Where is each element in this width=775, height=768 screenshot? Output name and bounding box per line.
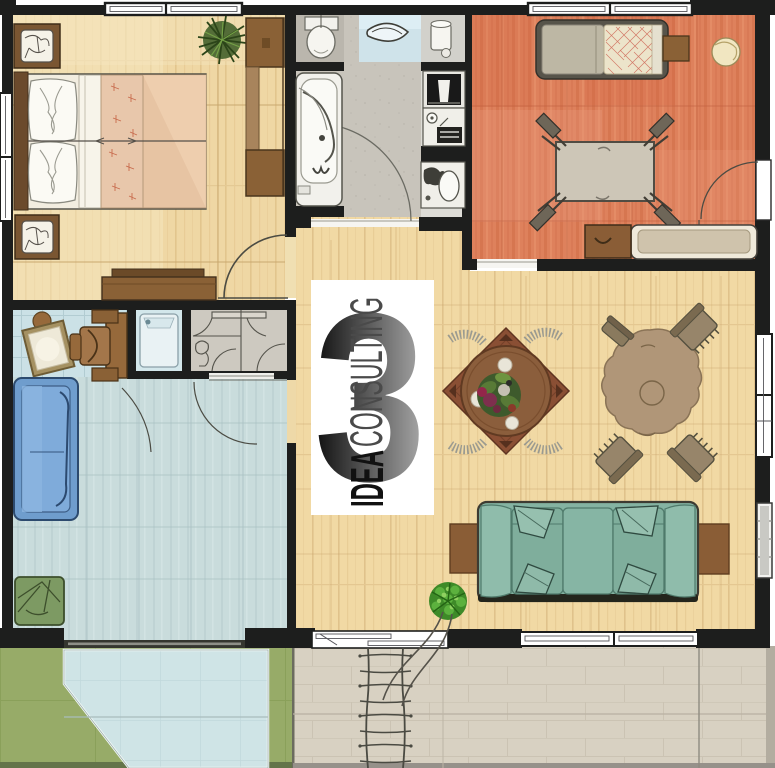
- svg-text:IDEA: IDEA: [341, 450, 393, 507]
- svg-text:CONSULTING: CONSULTING: [341, 297, 392, 447]
